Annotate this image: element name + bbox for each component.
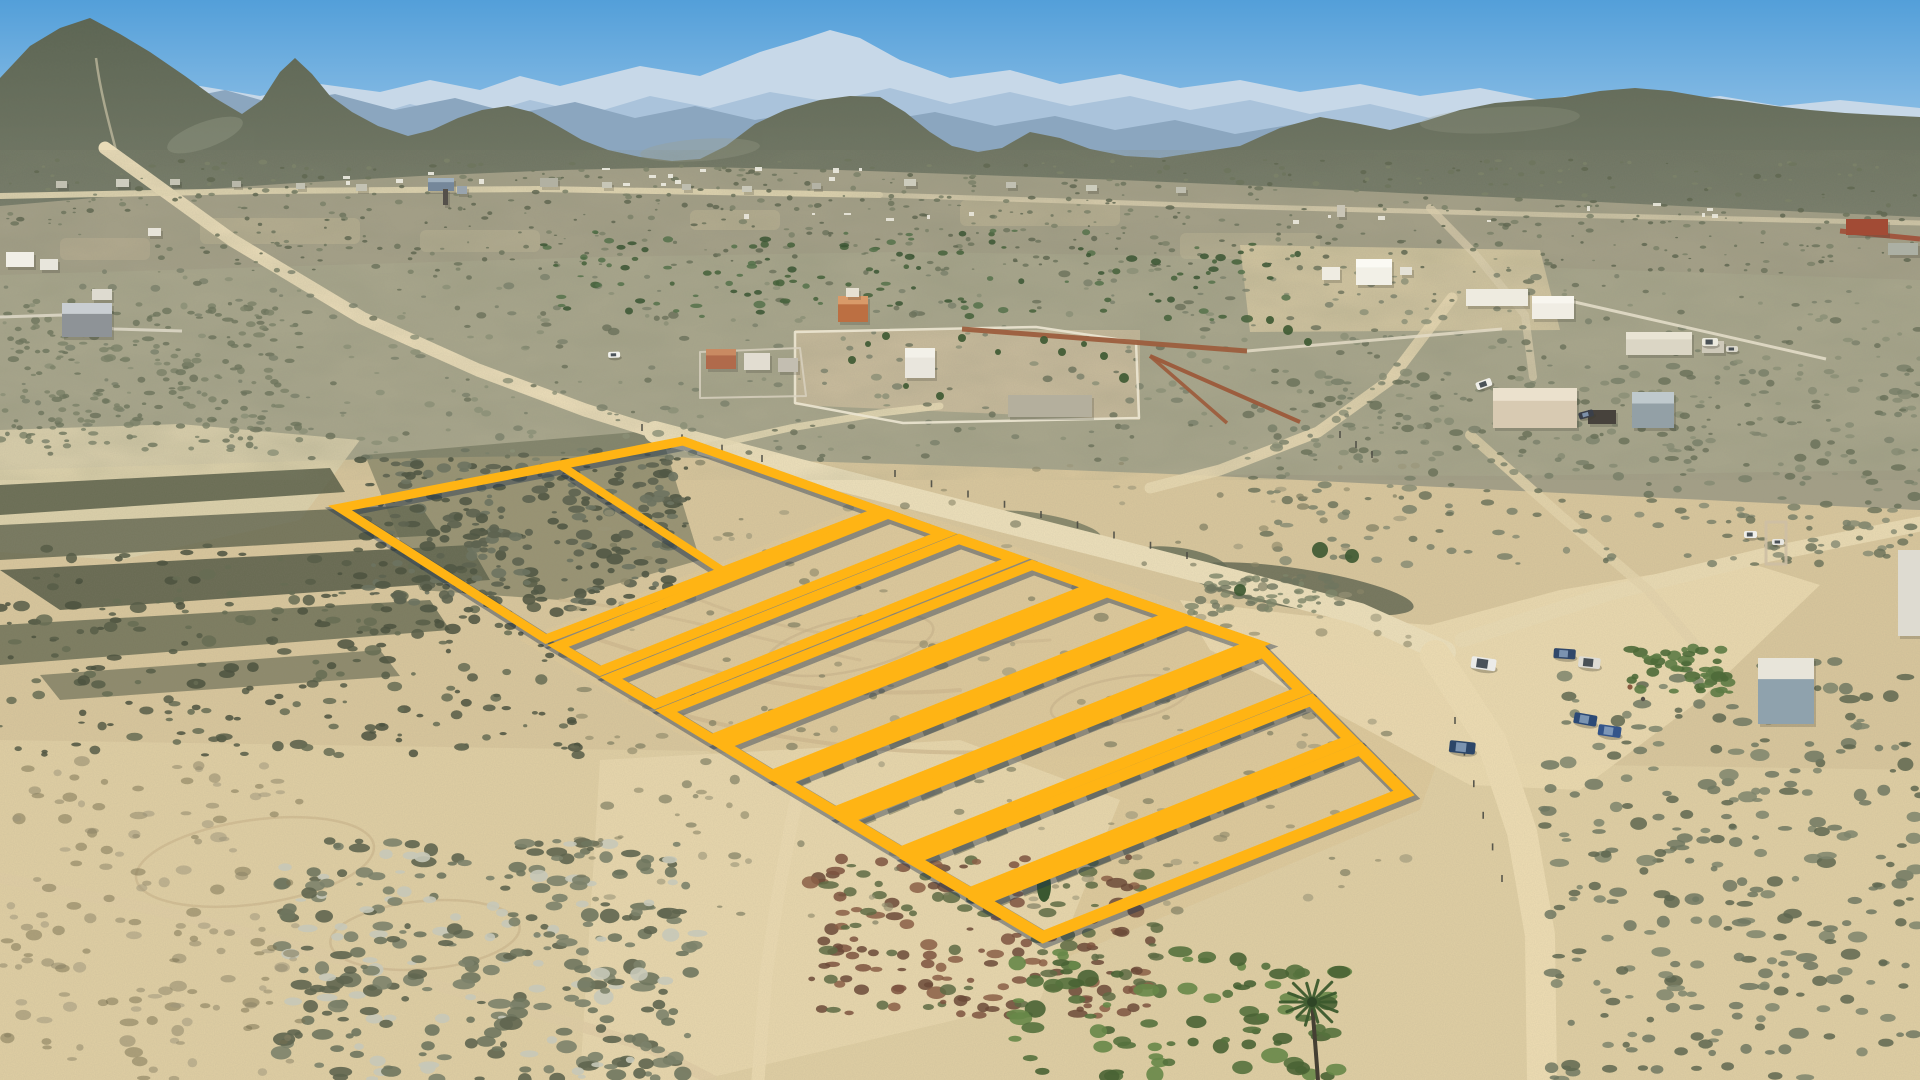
building (1466, 289, 1530, 309)
tree (1283, 325, 1293, 335)
building (846, 288, 861, 300)
tree (995, 349, 1001, 355)
building (904, 179, 918, 189)
building (92, 289, 114, 303)
building (778, 358, 800, 375)
building (1008, 395, 1094, 420)
tree (1234, 584, 1246, 596)
tree (1266, 316, 1274, 324)
building (1626, 332, 1694, 358)
building (706, 349, 738, 372)
building (1400, 267, 1414, 278)
tree (1081, 341, 1087, 347)
tree (1100, 352, 1108, 360)
tree (958, 334, 966, 342)
car (608, 352, 622, 361)
person (1627, 684, 1632, 689)
building (428, 178, 456, 194)
tree (1304, 338, 1312, 346)
building (1758, 658, 1816, 727)
building (62, 303, 114, 340)
tree (1058, 348, 1066, 356)
building (1493, 388, 1579, 431)
building (905, 348, 937, 381)
building (1322, 267, 1342, 283)
building (1532, 296, 1576, 322)
tree (848, 356, 856, 364)
building (838, 296, 870, 325)
aerial-photo-scene (0, 0, 1920, 1080)
building (1846, 219, 1890, 238)
building (116, 179, 131, 190)
tree (1345, 549, 1359, 563)
tree (936, 392, 944, 400)
building (6, 252, 36, 270)
building (744, 353, 772, 373)
car (1702, 338, 1720, 349)
tree (882, 332, 890, 340)
tree (865, 341, 871, 347)
car (1726, 346, 1740, 355)
tree (903, 383, 909, 389)
building (148, 228, 163, 239)
tree (1312, 542, 1328, 558)
aerial-photo (0, 0, 1920, 1080)
dog (1641, 697, 1645, 701)
building (1632, 392, 1676, 431)
building (1898, 550, 1920, 639)
car (1772, 539, 1786, 548)
tree (1119, 373, 1129, 383)
building (40, 259, 60, 273)
building (1888, 243, 1920, 258)
building (540, 178, 560, 190)
building (1356, 259, 1394, 288)
car (1744, 531, 1759, 541)
tree (1040, 336, 1048, 344)
